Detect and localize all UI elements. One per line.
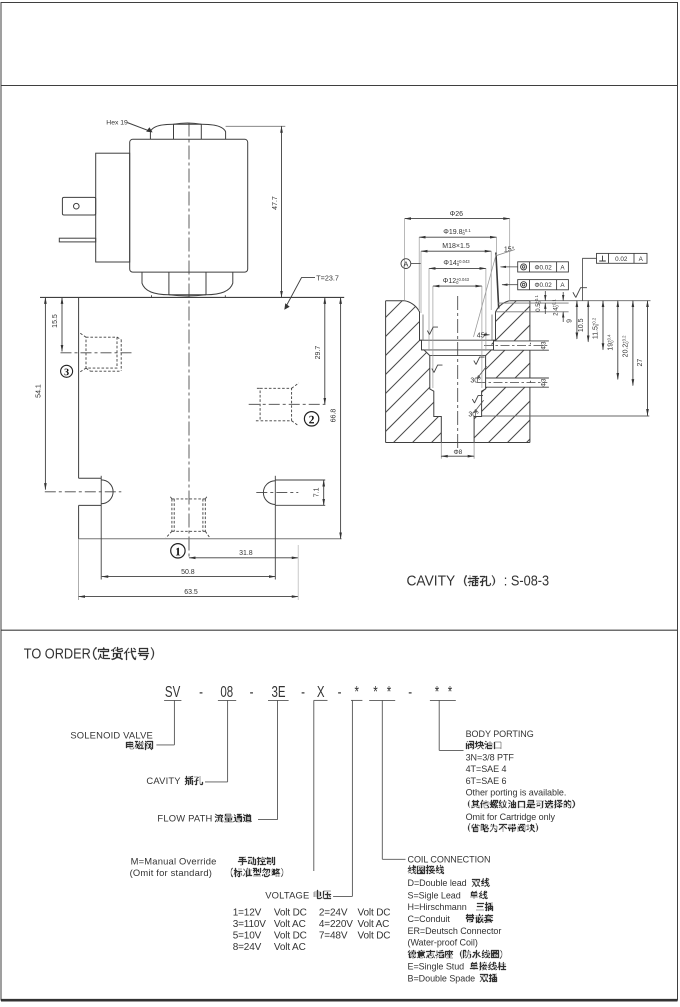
svg-text:8=24V: 8=24V: [233, 942, 262, 953]
svg-text:Φ0.02: Φ0.02: [534, 282, 552, 289]
svg-text:5=10V: 5=10V: [233, 931, 262, 942]
svg-text:B=Double Spade: B=Double Spade: [408, 973, 476, 983]
svg-text:Hex 19: Hex 19: [106, 120, 128, 127]
svg-text:15.5: 15.5: [52, 314, 59, 328]
svg-text:E=Single Stud: E=Single Stud: [408, 962, 465, 972]
svg-text:Volt DC: Volt DC: [358, 907, 391, 918]
svg-text:08: 08: [220, 682, 233, 700]
svg-text:66.8: 66.8: [331, 409, 338, 423]
svg-text:*: *: [435, 682, 440, 700]
svg-text:Φ0.02: Φ0.02: [534, 264, 552, 271]
svg-text:D=Double lead: D=Double lead: [408, 878, 467, 888]
svg-text:Volt DC: Volt DC: [358, 931, 391, 942]
svg-text:CAVITY: CAVITY: [407, 572, 456, 588]
svg-text:45°: 45°: [477, 331, 488, 339]
svg-text:A: A: [403, 259, 408, 268]
svg-text:-: -: [338, 682, 342, 700]
svg-text:Φ8: Φ8: [453, 449, 462, 456]
svg-text:-: -: [199, 682, 203, 700]
svg-text:Volt DC: Volt DC: [274, 931, 307, 942]
svg-text:*: *: [354, 682, 359, 700]
svg-text:CAVITY: CAVITY: [146, 775, 181, 786]
svg-text:7.1: 7.1: [313, 487, 320, 497]
svg-text:3N=3/8 PTF: 3N=3/8 PTF: [466, 752, 515, 762]
svg-text:C=Conduit: C=Conduit: [408, 914, 451, 924]
svg-text:29.7: 29.7: [315, 346, 322, 360]
svg-text:ER=Deutsch Connector: ER=Deutsch Connector: [408, 926, 502, 936]
svg-text:31.8: 31.8: [239, 550, 253, 557]
svg-text:Φ3: Φ3: [541, 378, 547, 387]
svg-text:(Omit for standard): (Omit for standard): [130, 867, 212, 878]
svg-text:*: *: [387, 682, 392, 700]
svg-text:FLOW PATH: FLOW PATH: [157, 813, 212, 824]
svg-text:M18×1.5: M18×1.5: [442, 243, 470, 250]
svg-text:TO ORDER: TO ORDER: [24, 644, 91, 661]
svg-text:6T=SAE 6: 6T=SAE 6: [466, 776, 507, 786]
svg-text:4=220V: 4=220V: [319, 919, 353, 930]
svg-text:BODY PORTING: BODY PORTING: [466, 729, 534, 739]
svg-text:-: -: [301, 682, 305, 700]
svg-text:2=24V: 2=24V: [319, 907, 348, 918]
svg-text:S=Sigle Lead: S=Sigle Lead: [408, 890, 461, 900]
svg-text:: S-08-3: : S-08-3: [504, 573, 549, 589]
svg-text:10.5: 10.5: [578, 318, 585, 332]
svg-text:H=Hirschmann: H=Hirschmann: [408, 902, 467, 912]
svg-text:SOLENOID VALVE: SOLENOID VALVE: [70, 730, 153, 741]
svg-text:47.7: 47.7: [272, 196, 279, 210]
svg-text:7=48V: 7=48V: [319, 931, 348, 942]
svg-text:Omit for Cartridge only: Omit for Cartridge only: [466, 812, 556, 822]
svg-text:54.1: 54.1: [36, 384, 43, 398]
svg-text:-: -: [408, 682, 412, 700]
svg-text:Volt AC: Volt AC: [274, 942, 306, 953]
svg-text:3E: 3E: [271, 682, 285, 700]
svg-text:Volt AC: Volt AC: [358, 919, 390, 930]
svg-text:COIL CONNECTION: COIL CONNECTION: [408, 855, 491, 865]
svg-text:Volt AC: Volt AC: [274, 919, 306, 930]
svg-text:1=12V: 1=12V: [233, 907, 262, 918]
svg-text:T=23.7: T=23.7: [316, 273, 339, 282]
svg-text:9: 9: [567, 319, 574, 323]
svg-text:Other porting is available.: Other porting is available.: [466, 788, 567, 798]
svg-text:(Water-proof Coil): (Water-proof Coil): [408, 938, 478, 948]
svg-text:-: -: [250, 682, 254, 700]
svg-text:X: X: [317, 682, 325, 700]
svg-text:SV: SV: [165, 682, 181, 700]
svg-text:Volt DC: Volt DC: [274, 907, 307, 918]
svg-text:Φ3: Φ3: [541, 341, 547, 350]
svg-text:50.8: 50.8: [181, 569, 195, 576]
svg-text:4T=SAE 4: 4T=SAE 4: [466, 764, 507, 774]
svg-text:30°: 30°: [468, 411, 479, 419]
svg-text:63.5: 63.5: [184, 589, 198, 596]
svg-text:VOLTAGE: VOLTAGE: [265, 889, 309, 900]
svg-text:27: 27: [637, 359, 644, 367]
svg-text:*: *: [373, 682, 378, 700]
svg-text:*: *: [448, 682, 453, 700]
svg-text:3=110V: 3=110V: [233, 919, 267, 930]
svg-text:Φ26: Φ26: [450, 211, 463, 218]
svg-text:0.02: 0.02: [615, 256, 628, 263]
svg-text:M=Manual Override: M=Manual Override: [131, 856, 217, 867]
